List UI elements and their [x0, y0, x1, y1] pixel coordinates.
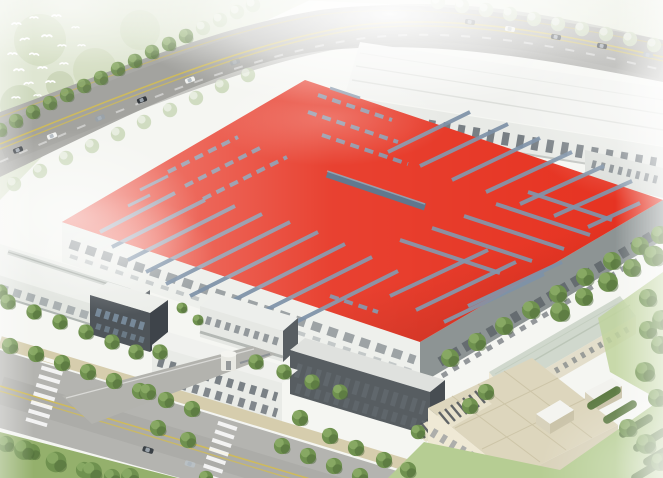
scene-canvas: Bird's-eye architectural rendering: a la…: [0, 0, 663, 478]
aerial-rendering: Aerial rendering of industrial factory c…: [0, 0, 663, 478]
